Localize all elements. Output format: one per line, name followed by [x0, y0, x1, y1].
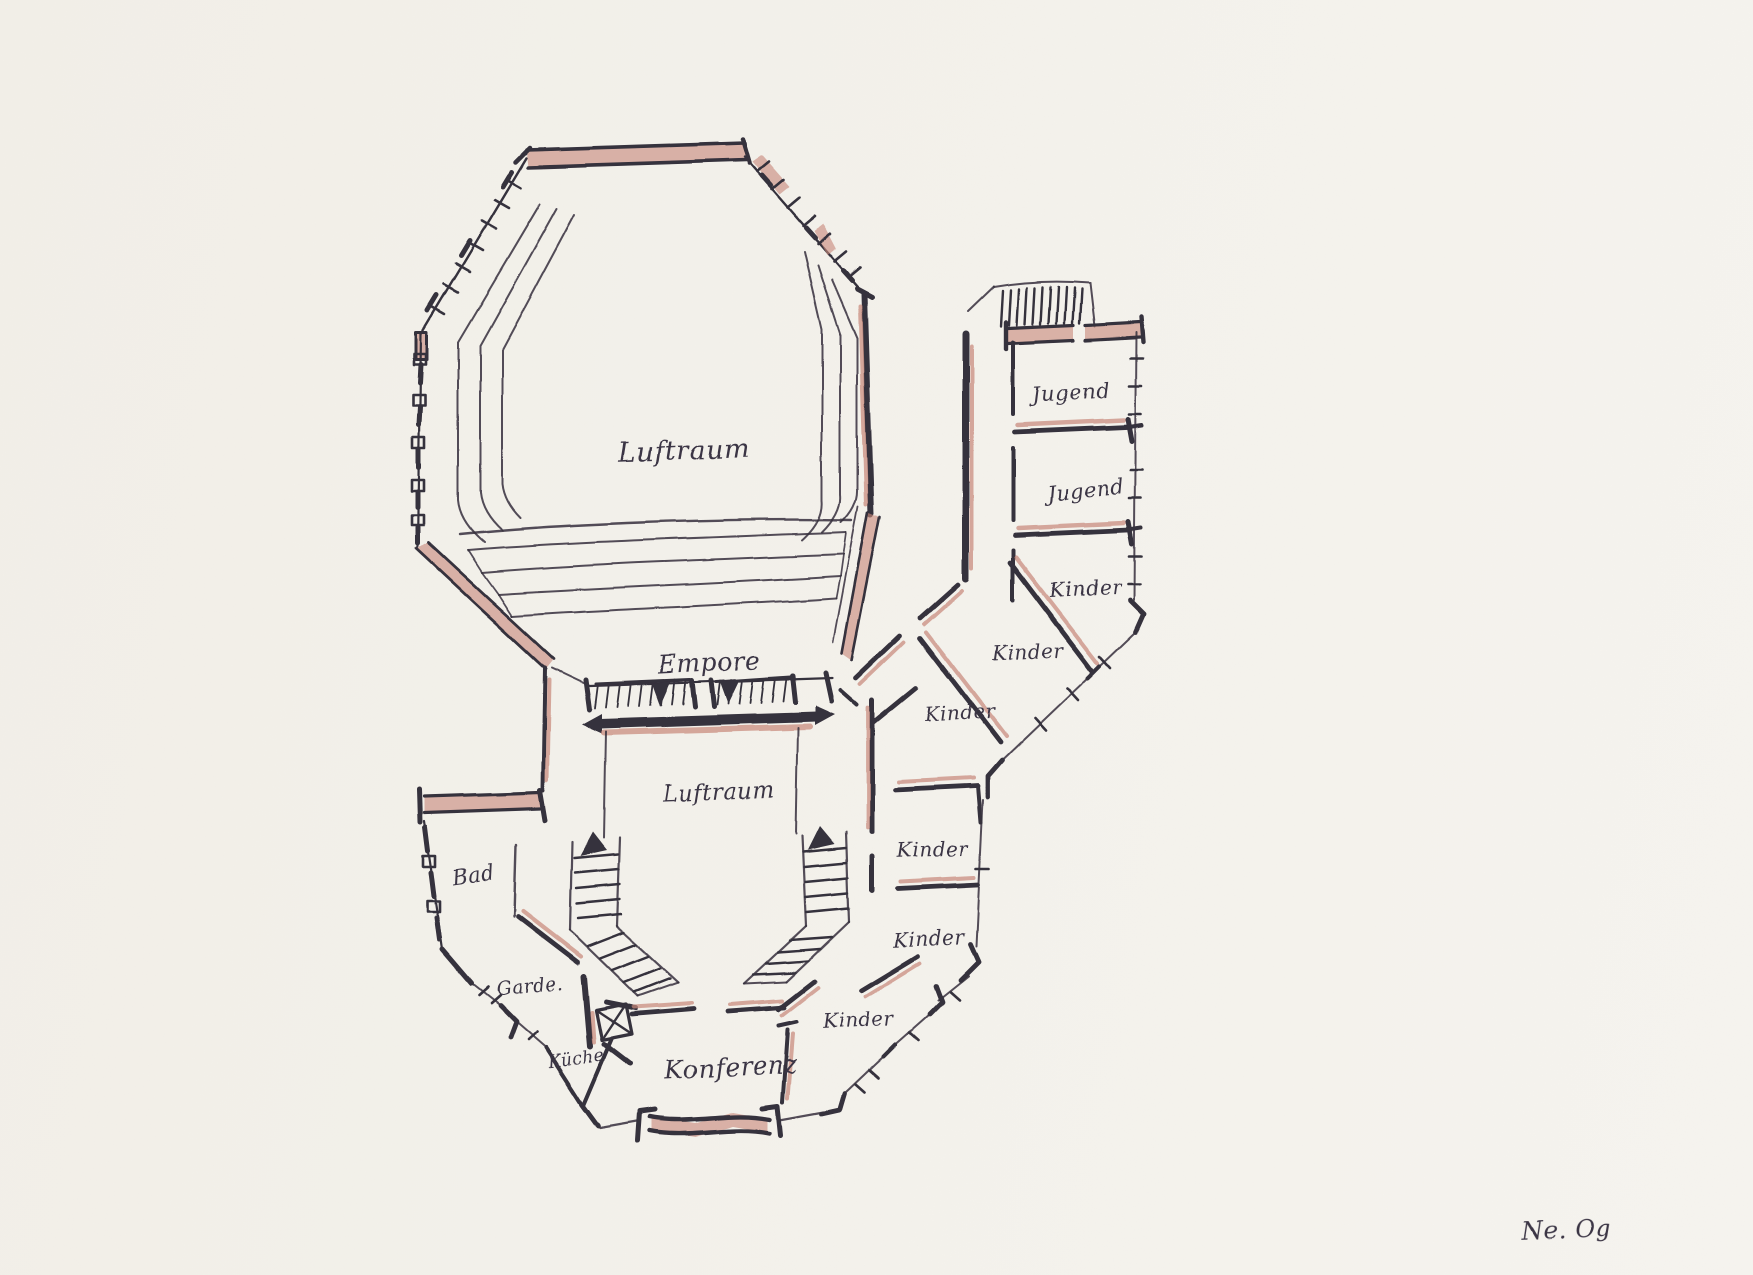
label-kinder-5: Kinder [892, 925, 966, 952]
elevator-icon [596, 1004, 632, 1040]
label-kinder-1: Kinder [1048, 575, 1123, 603]
label-kinder-6: Kinder [821, 1006, 896, 1034]
label-jugend-2: Jugend [1041, 474, 1125, 506]
label-empore: Empore [656, 646, 761, 680]
upper-gallery-inner-lines [458, 204, 857, 542]
wing-entry-stair [968, 282, 1095, 326]
label-konferenz: Konferenz [662, 1049, 798, 1085]
wing-walls [966, 317, 1143, 600]
floor-annotation: Ne. Og [1520, 1214, 1610, 1245]
entrance [638, 1106, 781, 1141]
stair-right [744, 826, 849, 984]
stair-left [570, 832, 678, 996]
paper-texture [0, 0, 1753, 1275]
label-kinder-2: Kinder [990, 638, 1065, 666]
label-luftraum-lower: Luftraum [661, 778, 776, 808]
label-kinder-4: Kinder [896, 836, 970, 863]
bath-room-walls [419, 668, 549, 950]
label-jugend-1: Jugend [1027, 378, 1110, 408]
gallery-seating-rows [460, 520, 852, 616]
label-garderobe: Garde. [495, 972, 565, 1001]
label-bad: Bad [450, 860, 497, 890]
label-kinder-3: Kinder [922, 699, 997, 727]
floor-plan-canvas: Luftraum Empore [0, 0, 1753, 1275]
label-luftraum-upper: Luftraum [616, 433, 750, 469]
label-kueche: Küche [546, 1045, 606, 1073]
upper-hall-walls [412, 139, 880, 669]
kids-stack-walls [778, 688, 989, 1092]
